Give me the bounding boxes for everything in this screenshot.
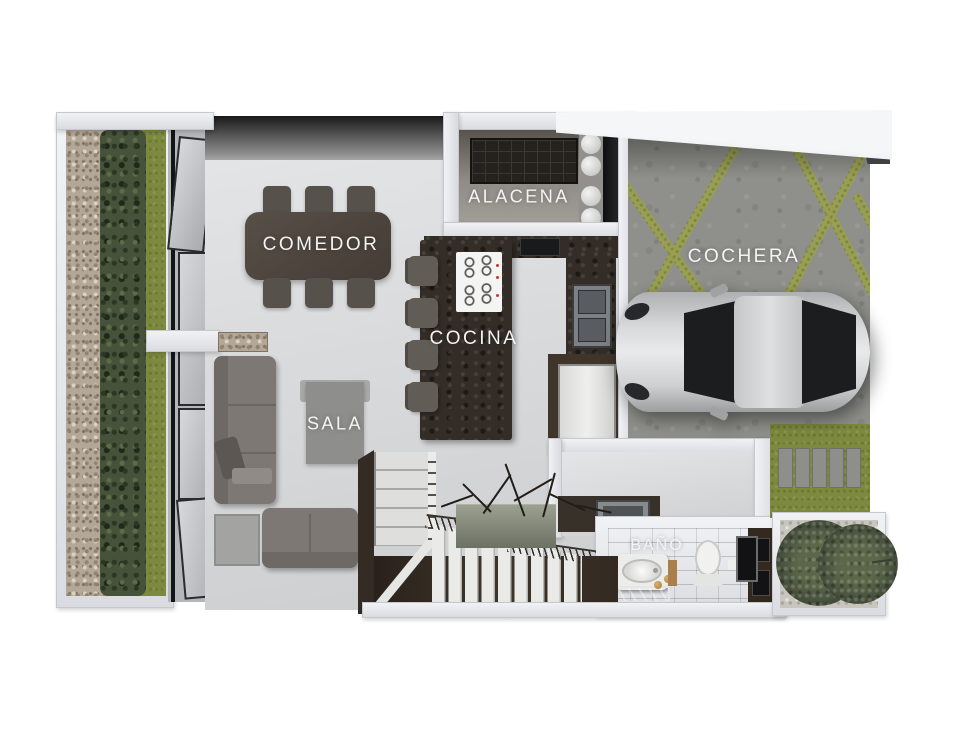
stepping-stone (846, 448, 861, 488)
room-label-cocina: COCINA (430, 328, 519, 350)
toilet-seat-base (693, 574, 723, 586)
dry-branches (436, 462, 606, 548)
bar-stool (408, 298, 438, 328)
tree-top (818, 524, 898, 604)
towel-bar (668, 560, 677, 586)
wall-stub (146, 330, 220, 352)
stepping-stone (829, 448, 844, 488)
loveseat-back-band (262, 552, 358, 568)
range-top (520, 238, 560, 256)
refrigerator (558, 364, 616, 444)
burner-icon (463, 256, 476, 279)
stairs-left-wall (358, 450, 374, 614)
granite-ledge (218, 332, 268, 352)
sink-basin (578, 318, 606, 342)
alacena-left-wall (443, 112, 459, 238)
appliance-column (579, 130, 603, 222)
oven-knob (581, 186, 601, 206)
oven-knob (581, 156, 601, 176)
oven-knob (581, 134, 601, 154)
room-label-alacena: ALACENA (468, 187, 570, 208)
sofa-cushion-line (228, 404, 276, 406)
burner-icon (463, 284, 476, 307)
room-label-sala: SALA (307, 414, 363, 435)
bar-stool (408, 382, 438, 412)
garden-top-wall (56, 112, 214, 130)
cooktop-knob (496, 264, 499, 267)
stepping-stone (812, 448, 827, 488)
kitchen-sink (572, 284, 612, 348)
car-rear-window (802, 298, 856, 406)
cooktop-knob (496, 294, 499, 297)
stepping-stone (778, 448, 793, 488)
room-label-cochera: COCHERA (688, 246, 801, 268)
floor-plan-render: COMEDOR SALA ALACENA COCINA (0, 0, 953, 736)
towel-roll (654, 581, 662, 589)
burner-icon (480, 282, 493, 305)
dining-chair (263, 278, 291, 308)
sink-basin (578, 290, 606, 314)
car (616, 288, 870, 416)
toilet-bowl (695, 540, 721, 576)
burner-icon (480, 254, 493, 277)
dining-chair (305, 278, 333, 308)
vanity-faucet (653, 568, 658, 573)
shower-tray (612, 586, 670, 603)
bathroom-mirror (736, 536, 758, 582)
room-label-comedor: COMEDOR (263, 234, 380, 256)
room-label-bano: BAÑO (630, 537, 683, 555)
branch (548, 493, 585, 512)
loveseat-cushion-line (309, 514, 311, 554)
south-wall (362, 602, 786, 618)
north-wall-shadow (205, 116, 445, 160)
oven-knob (581, 208, 601, 222)
car-roof (734, 296, 806, 408)
throw-blanket (232, 468, 272, 484)
sofa-back-band (214, 356, 228, 504)
bar-stool (408, 256, 438, 286)
cooktop (456, 252, 502, 312)
branch (441, 494, 474, 508)
stairs-upper-flight (374, 452, 428, 546)
car-windshield (684, 298, 740, 406)
alacena-shelf-unit (470, 138, 578, 184)
side-table (214, 514, 260, 566)
stepping-stone (795, 448, 810, 488)
cooktop-knob (496, 276, 499, 279)
dining-chair (347, 278, 375, 308)
garden-hedge (100, 130, 146, 596)
branch (504, 463, 525, 516)
